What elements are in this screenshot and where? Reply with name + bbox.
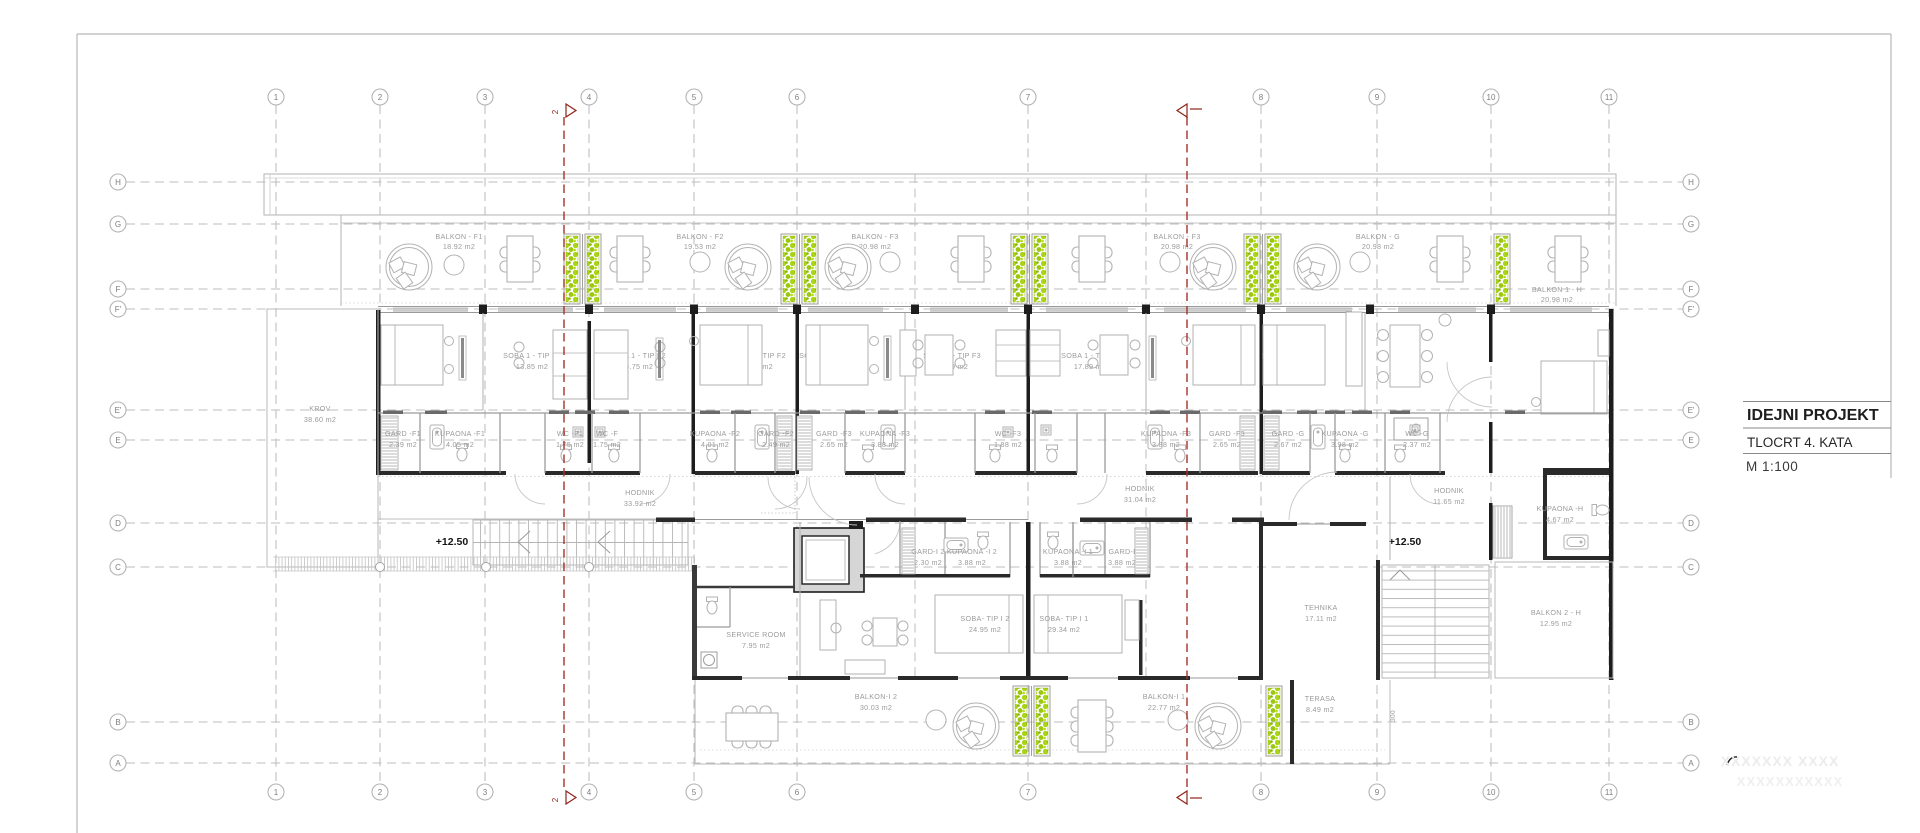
svg-text:1.88 m2: 1.88 m2 xyxy=(994,440,1022,449)
svg-text:24.95 m2: 24.95 m2 xyxy=(969,625,1001,634)
svg-text:WC -G: WC -G xyxy=(1405,429,1429,438)
svg-text:HODNIK: HODNIK xyxy=(625,488,655,497)
svg-text:7.95 m2: 7.95 m2 xyxy=(742,641,770,650)
svg-text:7: 7 xyxy=(1026,788,1031,797)
svg-text:B: B xyxy=(1688,718,1693,727)
svg-text:5: 5 xyxy=(692,93,697,102)
svg-text:2.39 m2: 2.39 m2 xyxy=(389,440,417,449)
svg-text:BALKON 1 - H: BALKON 1 - H xyxy=(1532,285,1582,294)
svg-text:KUPAONA -I 1: KUPAONA -I 1 xyxy=(1043,547,1093,556)
svg-text:33.92 m2: 33.92 m2 xyxy=(624,499,656,508)
svg-text:2: 2 xyxy=(378,788,383,797)
svg-text:31.04 m2: 31.04 m2 xyxy=(1124,495,1156,504)
svg-text:9: 9 xyxy=(1375,93,1380,102)
svg-text:11: 11 xyxy=(1605,93,1614,102)
svg-text:17.11 m2: 17.11 m2 xyxy=(1305,614,1337,623)
svg-text:BALKON - F3: BALKON - F3 xyxy=(1153,232,1200,241)
svg-text:1.75 m2: 1.75 m2 xyxy=(593,440,621,449)
svg-text:SERVICE ROOM: SERVICE ROOM xyxy=(726,630,785,639)
svg-text:2.37 m2: 2.37 m2 xyxy=(1403,440,1431,449)
svg-text:20.98 m2: 20.98 m2 xyxy=(1541,295,1573,304)
svg-text:HODNIK: HODNIK xyxy=(1125,484,1155,493)
svg-text:KUPAONA -F2: KUPAONA -F2 xyxy=(690,429,740,438)
svg-text:C: C xyxy=(1688,563,1694,572)
svg-text:12.95 m2: 12.95 m2 xyxy=(1540,619,1572,628)
svg-text:10: 10 xyxy=(1487,93,1496,102)
svg-text:KUPAONA -H: KUPAONA -H xyxy=(1537,504,1584,513)
svg-text:1.75 m2: 1.75 m2 xyxy=(556,440,584,449)
svg-text:3.88 m2: 3.88 m2 xyxy=(1152,440,1180,449)
svg-text:20.98 m2: 20.98 m2 xyxy=(1362,242,1394,251)
svg-text:BALKON - F1: BALKON - F1 xyxy=(435,232,482,241)
svg-text:3.88 m2: 3.88 m2 xyxy=(871,440,899,449)
svg-text:F': F' xyxy=(115,305,122,314)
svg-text:2.65 m2: 2.65 m2 xyxy=(1213,440,1241,449)
svg-text:D: D xyxy=(1688,519,1694,528)
svg-text:F': F' xyxy=(1688,305,1695,314)
svg-text:4.67 m2: 4.67 m2 xyxy=(1546,515,1574,524)
svg-text:BALKON 2 - H: BALKON 2 - H xyxy=(1531,608,1581,617)
svg-text:TEHNIKA: TEHNIKA xyxy=(1304,603,1337,612)
svg-text:11.65 m2: 11.65 m2 xyxy=(1433,497,1465,506)
svg-text:SOBA- TIP I 2: SOBA- TIP I 2 xyxy=(960,614,1009,623)
svg-text:SOBA 1 - TIP F1: SOBA 1 - TIP F1 xyxy=(503,351,561,360)
svg-text:D: D xyxy=(115,519,121,528)
svg-text:3: 3 xyxy=(483,788,488,797)
svg-text:BALKON-I 1: BALKON-I 1 xyxy=(1143,692,1186,701)
svg-text:2: 2 xyxy=(378,93,383,102)
svg-text:E: E xyxy=(1688,436,1693,445)
svg-text:TLOCRT 4. KATA: TLOCRT 4. KATA xyxy=(1747,435,1853,450)
svg-text:G: G xyxy=(115,220,121,229)
svg-text:E': E' xyxy=(115,406,122,415)
svg-text:H: H xyxy=(1688,178,1694,187)
svg-text:+12.50: +12.50 xyxy=(436,536,469,548)
svg-text:4.01 m2: 4.01 m2 xyxy=(701,440,729,449)
svg-text:8: 8 xyxy=(1259,93,1264,102)
svg-text:19.53 m2: 19.53 m2 xyxy=(684,242,716,251)
svg-text:GARD-I: GARD-I xyxy=(1109,547,1136,556)
svg-text:11: 11 xyxy=(1605,788,1614,797)
svg-text:GARD -F2: GARD -F2 xyxy=(758,429,794,438)
svg-text:GARD -F3: GARD -F3 xyxy=(816,429,852,438)
svg-text:3: 3 xyxy=(483,93,488,102)
svg-text:2.30 m2: 2.30 m2 xyxy=(914,558,942,567)
svg-text:XXXXXXXXXXX: XXXXXXXXXXX xyxy=(1737,774,1843,789)
svg-text:BALKON - F3: BALKON - F3 xyxy=(851,232,898,241)
svg-text:4.05 m2: 4.05 m2 xyxy=(446,440,474,449)
svg-text:TERASA: TERASA xyxy=(1305,694,1336,703)
svg-text:3.88 m2: 3.88 m2 xyxy=(958,558,986,567)
svg-text:+12.50: +12.50 xyxy=(1389,536,1422,548)
svg-text:3.88 m2: 3.88 m2 xyxy=(1108,558,1136,567)
svg-text:E: E xyxy=(115,436,120,445)
svg-text:F: F xyxy=(116,285,121,294)
svg-text:30.03 m2: 30.03 m2 xyxy=(860,703,892,712)
svg-text:GARD -F3: GARD -F3 xyxy=(1209,429,1245,438)
svg-text:1: 1 xyxy=(274,788,279,797)
svg-text:KUPAONA -I 2: KUPAONA -I 2 xyxy=(947,547,997,556)
svg-text:8.49 m2: 8.49 m2 xyxy=(1306,705,1334,714)
svg-text:7: 7 xyxy=(1026,93,1031,102)
svg-text:WC -F1: WC -F1 xyxy=(557,429,584,438)
svg-text:KROV: KROV xyxy=(309,404,331,413)
svg-text:GARD -F1: GARD -F1 xyxy=(385,429,421,438)
svg-text:GARD-I 2: GARD-I 2 xyxy=(911,547,945,556)
svg-text:2.65 m2: 2.65 m2 xyxy=(820,440,848,449)
svg-text:300: 300 xyxy=(1390,710,1397,722)
svg-text:B: B xyxy=(115,718,120,727)
svg-text:2.49 m2: 2.49 m2 xyxy=(762,440,790,449)
svg-text:C: C xyxy=(115,563,121,572)
svg-text:8: 8 xyxy=(1259,788,1264,797)
svg-text:5: 5 xyxy=(692,788,697,797)
svg-text:M 1:100: M 1:100 xyxy=(1746,459,1798,474)
svg-text:1: 1 xyxy=(274,93,279,102)
svg-text:KUPAONA -G: KUPAONA -G xyxy=(1321,429,1368,438)
svg-text:BALKON - F2: BALKON - F2 xyxy=(676,232,723,241)
svg-text:9: 9 xyxy=(1375,788,1380,797)
svg-text:18.92 m2: 18.92 m2 xyxy=(443,242,475,251)
svg-text:GARD -G: GARD -G xyxy=(1272,429,1305,438)
svg-text:IDEJNI PROJEKT: IDEJNI PROJEKT xyxy=(1747,407,1879,424)
svg-text:3.98 m2: 3.98 m2 xyxy=(1331,440,1359,449)
svg-text:3.88 m2: 3.88 m2 xyxy=(1054,558,1082,567)
svg-text:4: 4 xyxy=(587,788,592,797)
svg-text:KUPAONA -F3: KUPAONA -F3 xyxy=(1141,429,1191,438)
svg-text:2: 2 xyxy=(551,797,560,802)
svg-text:4: 4 xyxy=(587,93,592,102)
svg-text:2.67 m2: 2.67 m2 xyxy=(1274,440,1302,449)
svg-text:KUPAONA -F1: KUPAONA -F1 xyxy=(435,429,485,438)
svg-text:H: H xyxy=(115,178,121,187)
svg-text:A: A xyxy=(115,759,121,768)
svg-text:SOBA- TIP I 1: SOBA- TIP I 1 xyxy=(1039,614,1088,623)
svg-text:WC -F: WC -F xyxy=(596,429,619,438)
svg-text:WC -F3: WC -F3 xyxy=(995,429,1022,438)
svg-text:XXXXXXX XXXX: XXXXXXX XXXX xyxy=(1721,753,1840,769)
svg-text:BALKON-I 2: BALKON-I 2 xyxy=(855,692,898,701)
svg-text:A: A xyxy=(1688,759,1694,768)
svg-text:10: 10 xyxy=(1487,788,1496,797)
svg-text:29.34 m2: 29.34 m2 xyxy=(1048,625,1080,634)
svg-text:E': E' xyxy=(1688,406,1695,415)
svg-text:13.85 m2: 13.85 m2 xyxy=(516,362,548,371)
svg-text:20.98 m2: 20.98 m2 xyxy=(1161,242,1193,251)
svg-text:6: 6 xyxy=(795,788,800,797)
svg-text:G: G xyxy=(1688,220,1694,229)
svg-text:BALKON - G: BALKON - G xyxy=(1356,232,1400,241)
svg-text:KUPAONA -F3: KUPAONA -F3 xyxy=(860,429,910,438)
svg-text:38.60 m2: 38.60 m2 xyxy=(304,415,336,424)
svg-text:2: 2 xyxy=(551,109,560,114)
svg-text:6: 6 xyxy=(795,93,800,102)
svg-text:F: F xyxy=(1689,285,1694,294)
svg-text:HODNIK: HODNIK xyxy=(1434,486,1464,495)
